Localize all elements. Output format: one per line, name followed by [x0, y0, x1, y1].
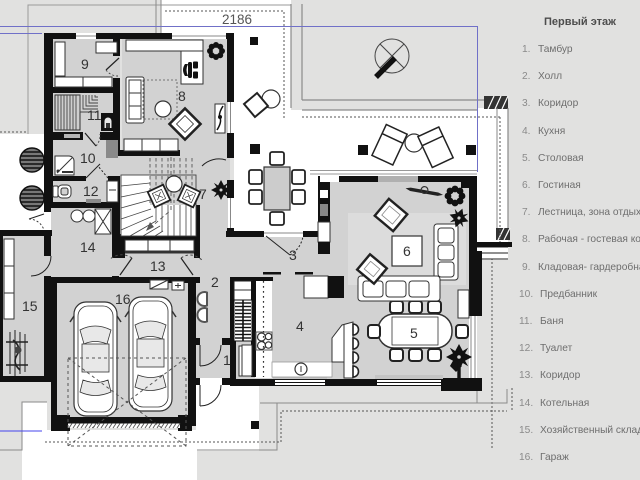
svg-text:Гараж: Гараж: [540, 452, 569, 463]
svg-text:13: 13: [150, 258, 166, 274]
svg-text:Коридор: Коридор: [540, 370, 581, 381]
svg-text:Лестница, зона отдыха: Лестница, зона отдыха: [538, 207, 640, 218]
svg-text:16: 16: [115, 291, 131, 307]
svg-text:1: 1: [223, 352, 231, 368]
svg-text:15: 15: [22, 298, 38, 314]
svg-text:Столовая: Столовая: [538, 153, 584, 164]
svg-text:Туалет: Туалет: [540, 343, 573, 354]
svg-text:3.: 3.: [522, 98, 531, 109]
svg-text:Гостиная: Гостиная: [538, 180, 581, 191]
svg-text:Кладовая- гардеробная: Кладовая- гардеробная: [538, 261, 640, 273]
svg-text:3: 3: [289, 247, 297, 263]
svg-text:Баня: Баня: [540, 316, 564, 327]
svg-text:5.: 5.: [522, 153, 531, 164]
svg-text:16.: 16.: [519, 452, 533, 463]
svg-text:Котельная: Котельная: [540, 398, 589, 409]
svg-text:Тамбур: Тамбур: [538, 43, 573, 55]
svg-text:2186: 2186: [222, 12, 252, 27]
svg-text:1.: 1.: [522, 44, 531, 55]
svg-text:5: 5: [410, 325, 418, 341]
svg-text:7: 7: [199, 186, 207, 202]
svg-text:9.: 9.: [522, 262, 531, 273]
svg-text:Первый этаж: Первый этаж: [544, 16, 616, 28]
svg-text:14.: 14.: [519, 398, 533, 409]
svg-text:Предбанник: Предбанник: [540, 288, 598, 300]
svg-text:Холл: Холл: [538, 71, 562, 82]
svg-text:4: 4: [296, 318, 304, 334]
svg-text:2: 2: [211, 274, 219, 290]
svg-text:8.: 8.: [522, 234, 531, 245]
svg-text:Рабочая - гостевая комн: Рабочая - гостевая комн: [538, 233, 640, 245]
svg-text:13.: 13.: [519, 370, 533, 381]
svg-text:6: 6: [403, 243, 411, 259]
svg-text:11: 11: [87, 107, 102, 123]
svg-text:Кухня: Кухня: [538, 126, 565, 137]
svg-text:6.: 6.: [522, 180, 531, 191]
svg-text:10: 10: [80, 150, 96, 166]
svg-text:8: 8: [178, 88, 186, 104]
svg-text:10.: 10.: [519, 289, 533, 300]
svg-text:14: 14: [80, 239, 96, 255]
svg-text:Коридор: Коридор: [538, 98, 579, 109]
svg-text:12: 12: [83, 183, 99, 199]
svg-text:15.: 15.: [519, 425, 533, 436]
svg-text:Хозяйственный склад: Хозяйственный склад: [540, 425, 640, 436]
svg-text:4.: 4.: [522, 126, 531, 137]
svg-text:9: 9: [81, 56, 89, 72]
svg-text:11.: 11.: [519, 316, 532, 327]
svg-text:12.: 12.: [519, 343, 533, 354]
svg-text:7.: 7.: [522, 207, 531, 218]
svg-text:2.: 2.: [522, 71, 531, 82]
